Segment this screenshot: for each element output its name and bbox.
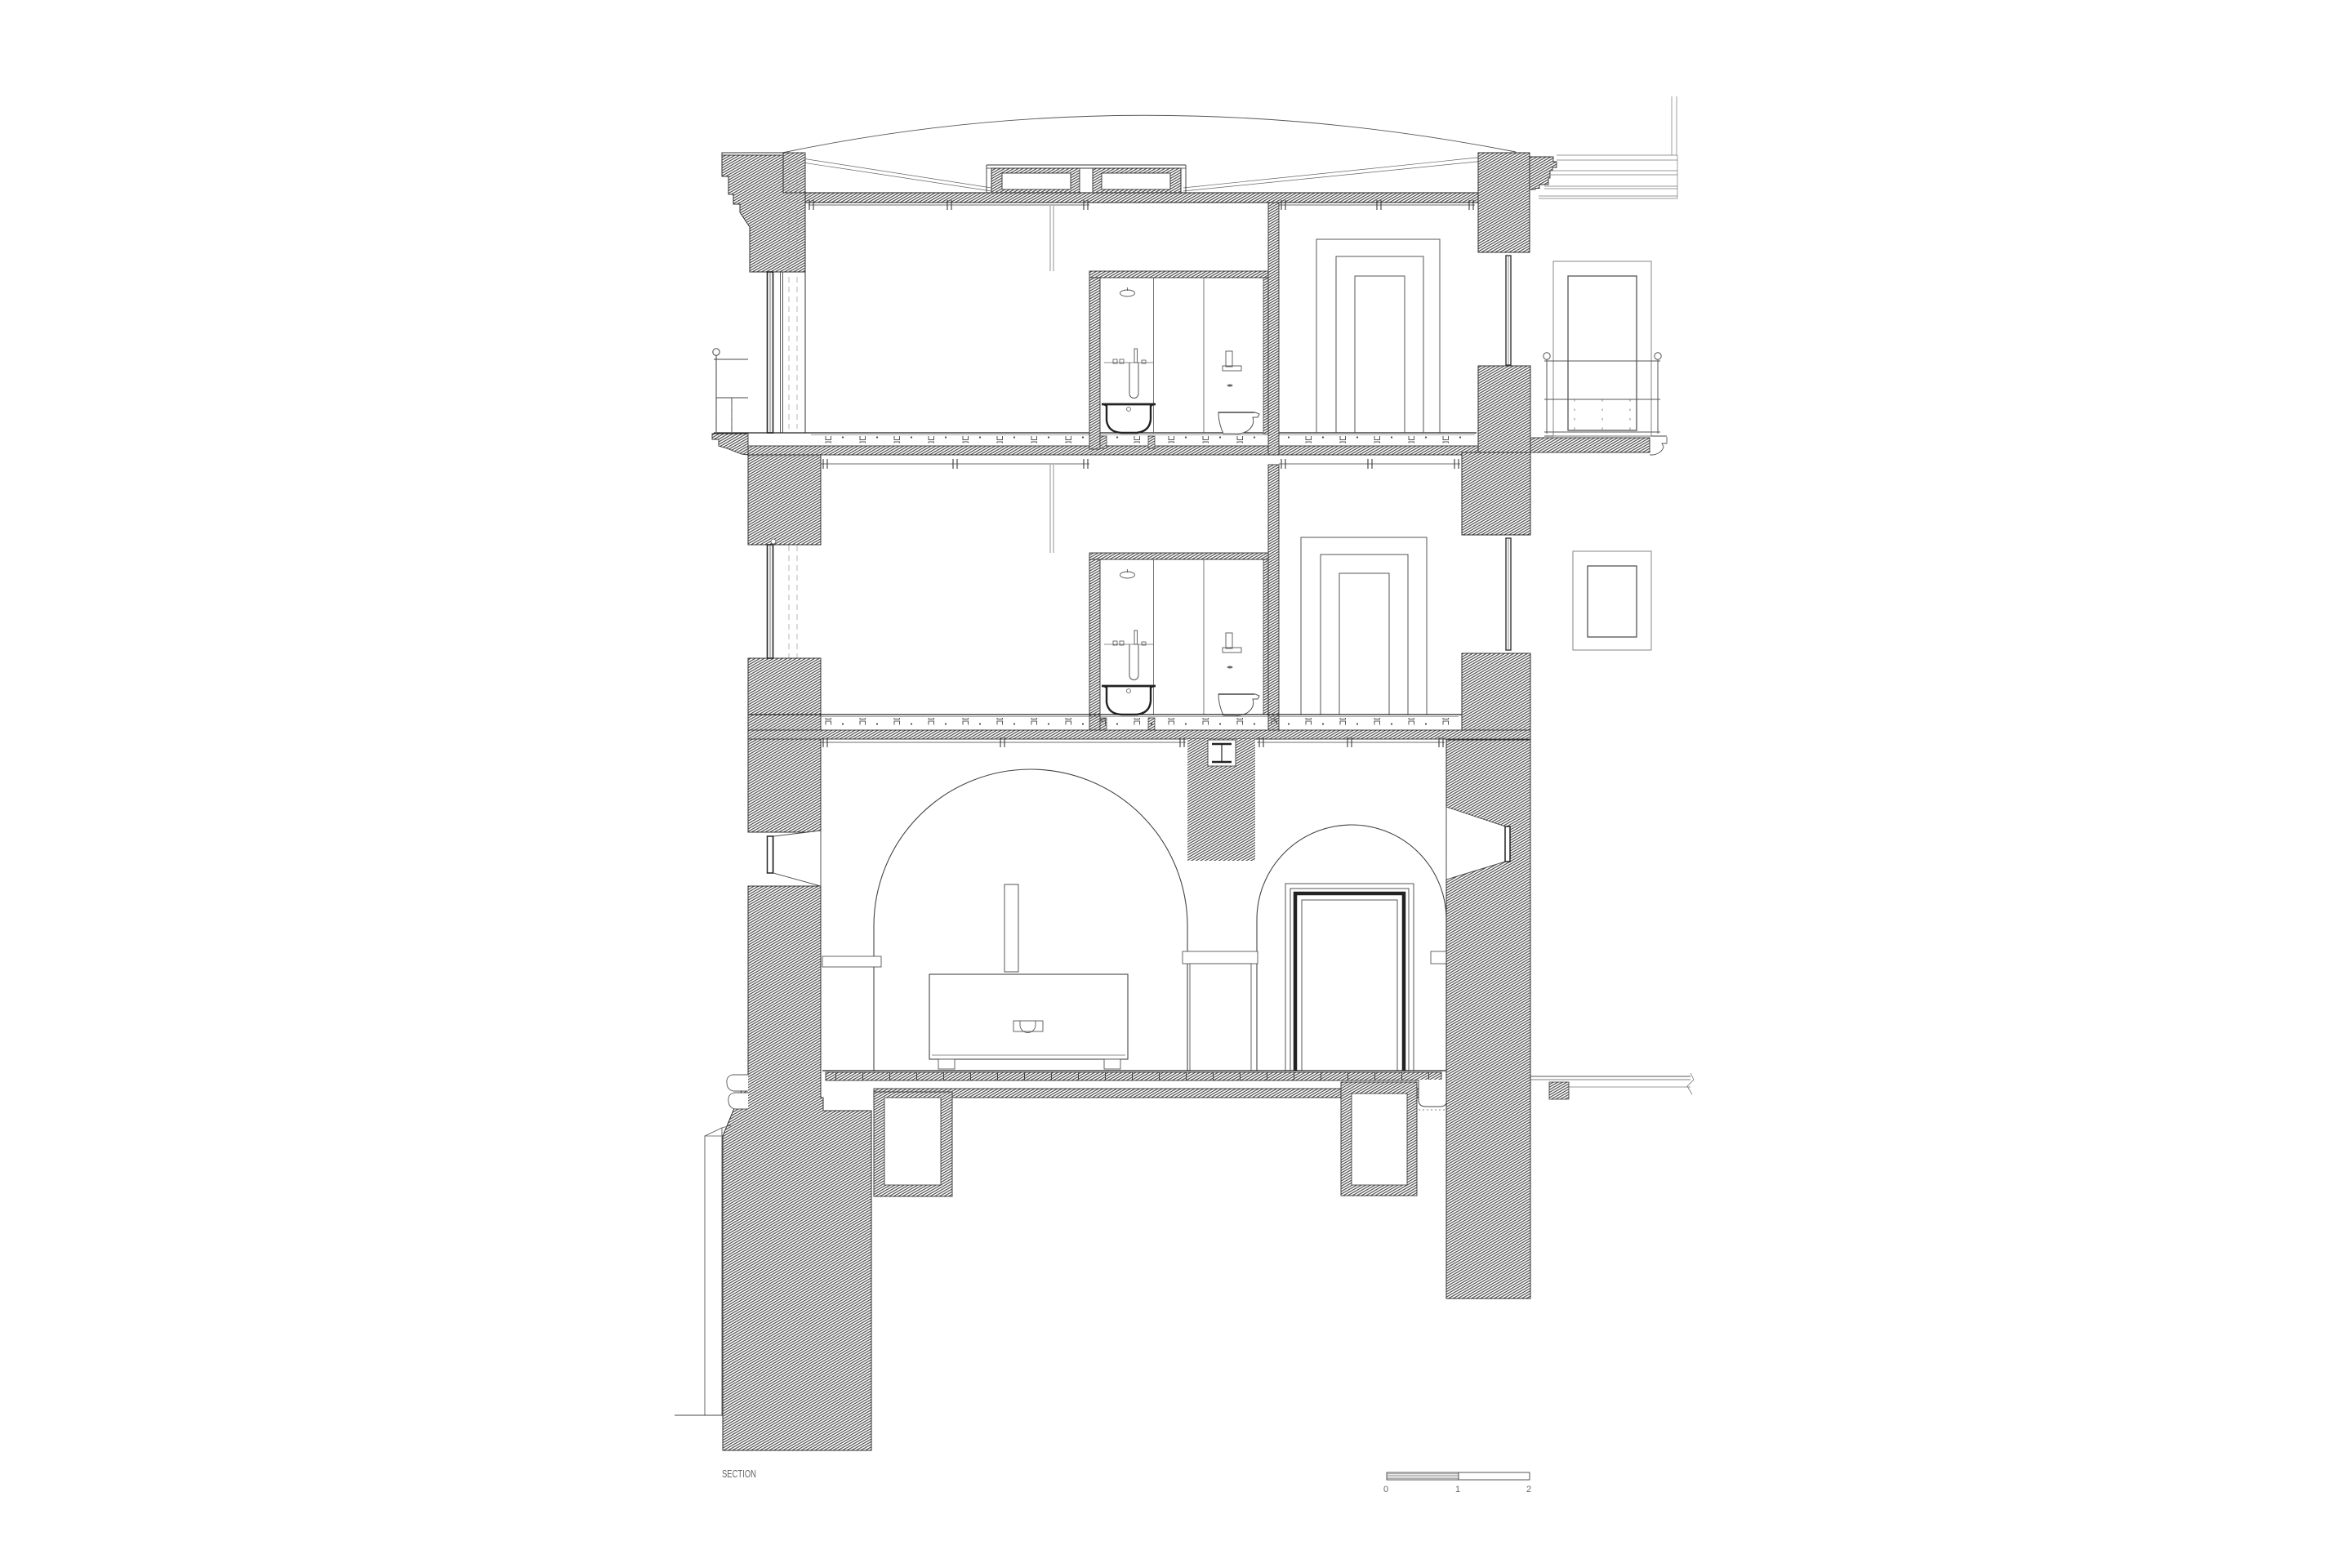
svg-text:0: 0 (1383, 1485, 1388, 1494)
svg-text:SECTION: SECTION (722, 1468, 756, 1480)
svg-text:1: 1 (1455, 1485, 1460, 1494)
svg-text:2: 2 (1526, 1485, 1531, 1494)
